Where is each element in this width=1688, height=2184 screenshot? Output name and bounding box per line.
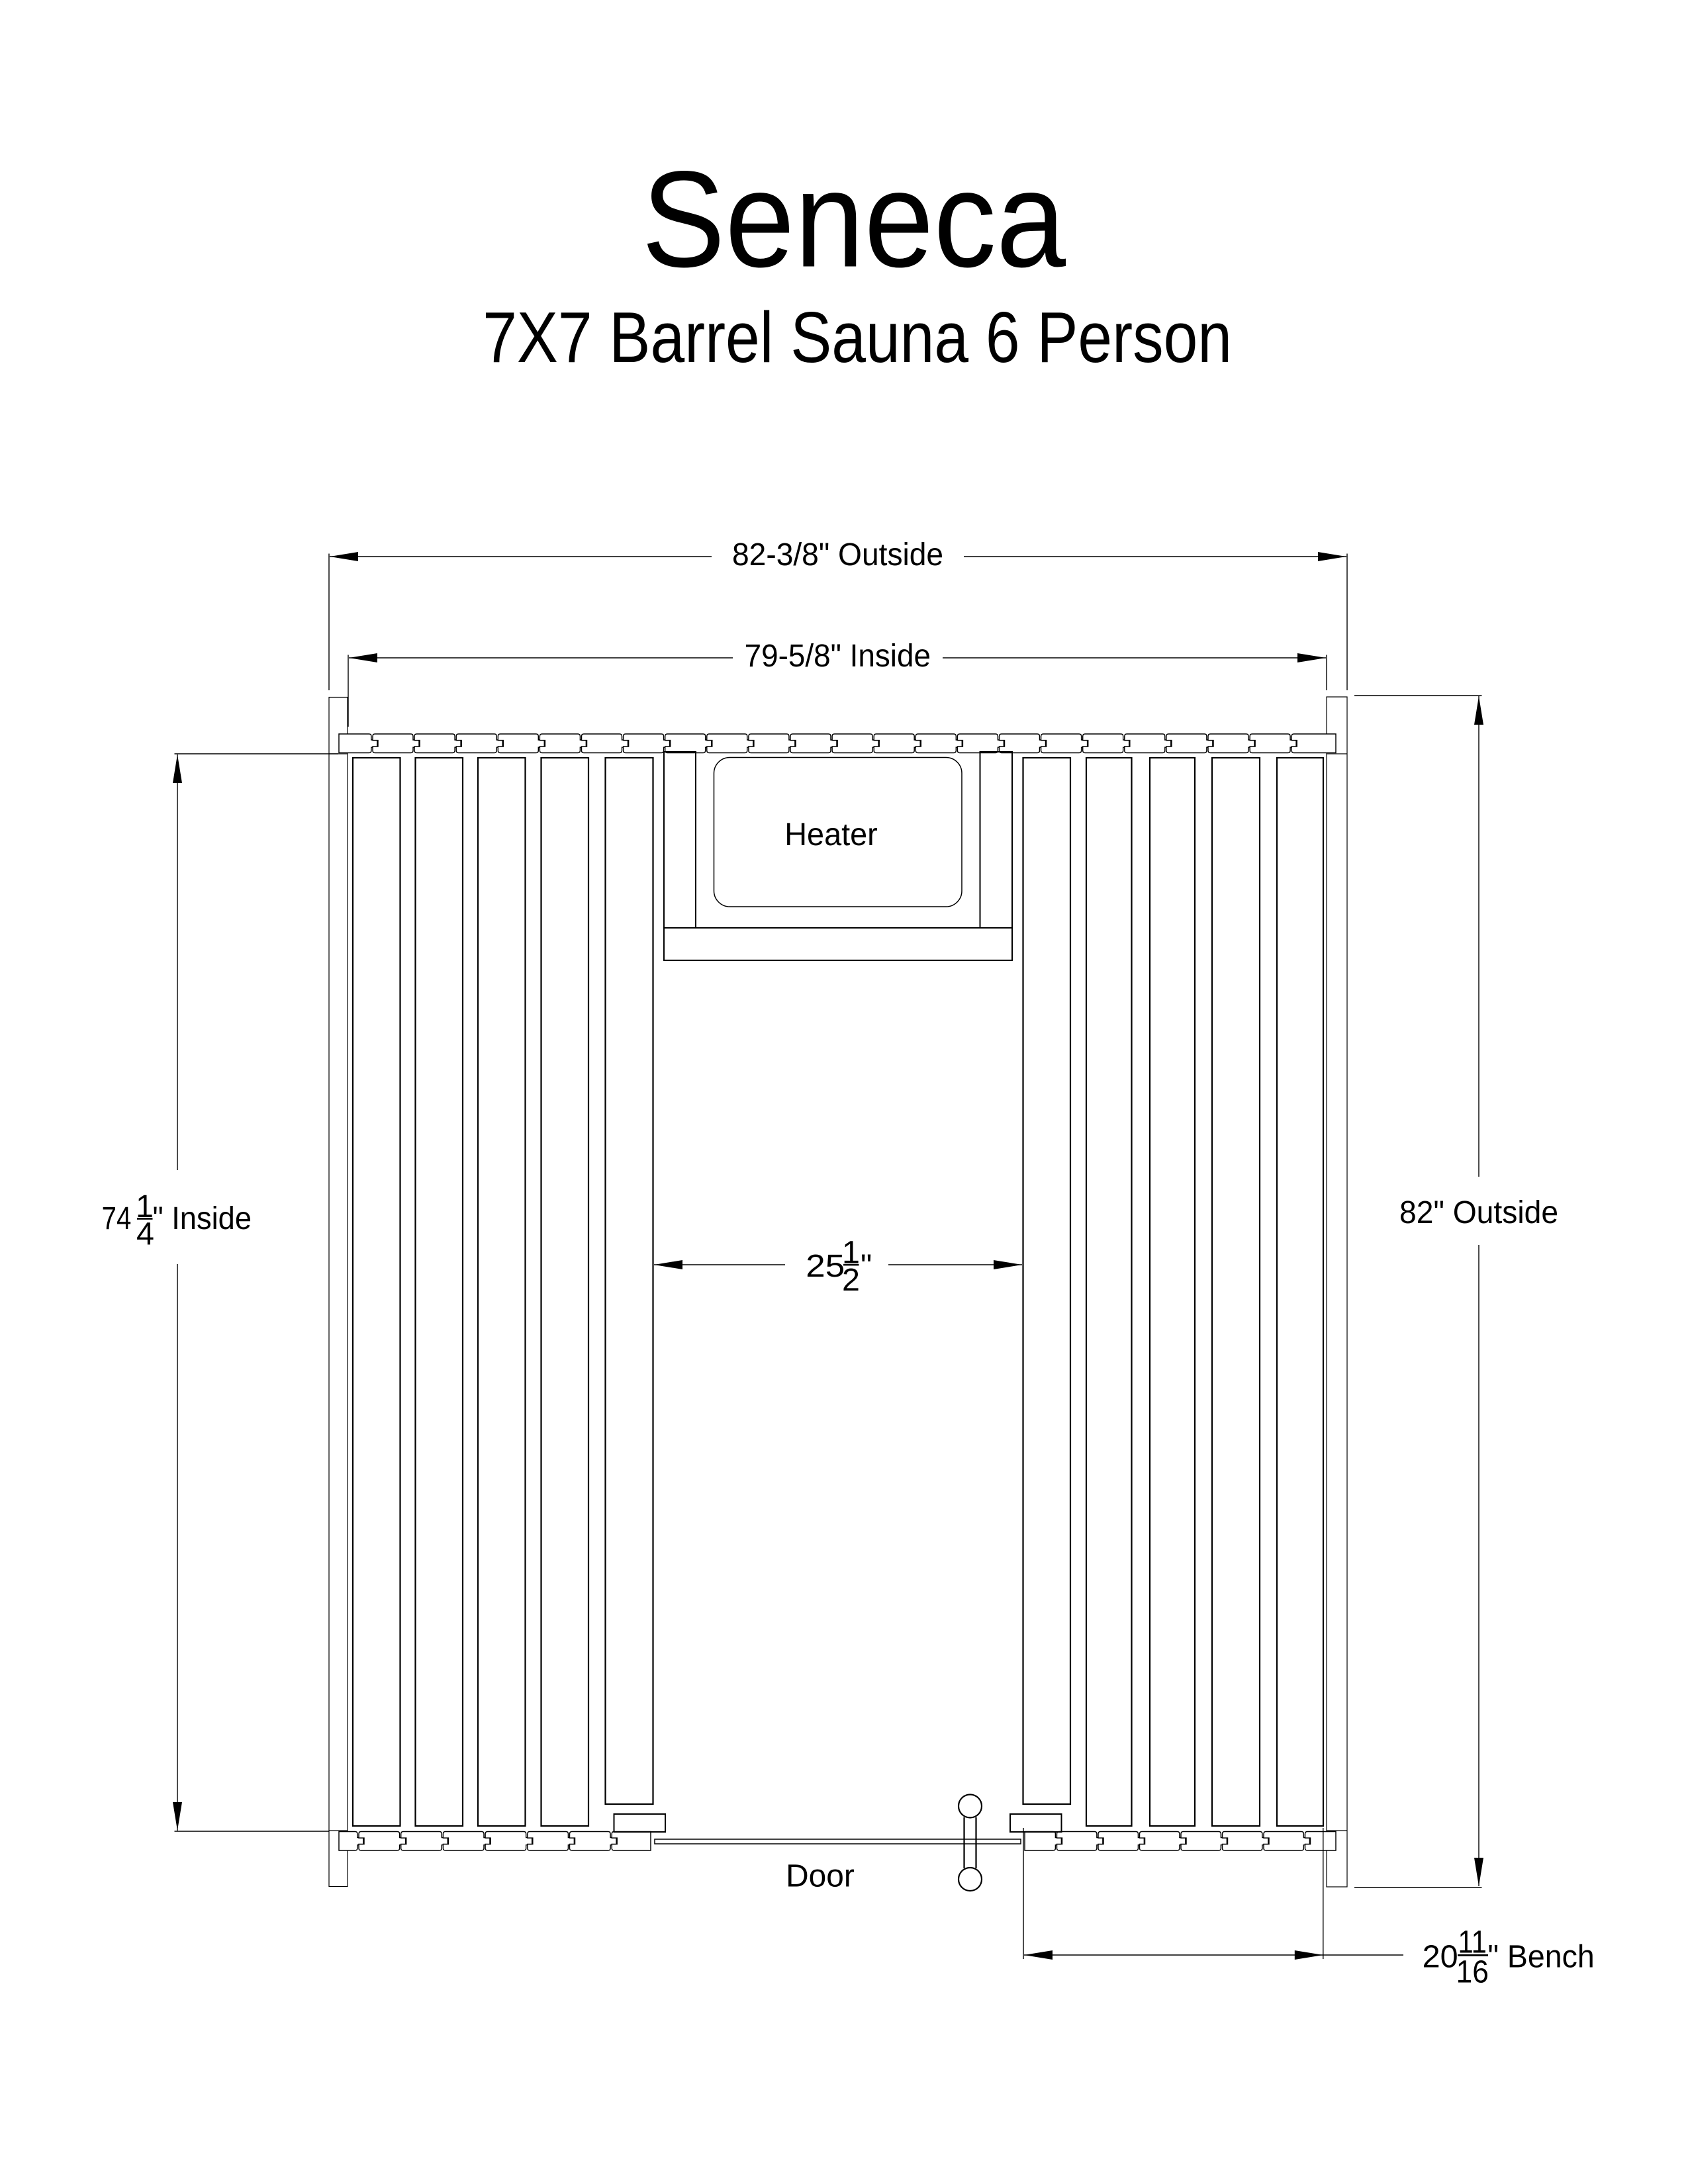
svg-text:79-5/8" Inside: 79-5/8" Inside [745, 638, 931, 674]
svg-text:2: 2 [842, 1262, 860, 1298]
svg-text:82" Outside: 82" Outside [1399, 1195, 1558, 1230]
svg-text:4: 4 [136, 1216, 154, 1252]
svg-text:Door: Door [786, 1858, 855, 1894]
svg-text:82-3/8" Outside: 82-3/8" Outside [732, 537, 943, 572]
svg-text:74: 74 [102, 1201, 132, 1236]
svg-text:" Inside: " Inside [153, 1201, 252, 1236]
svg-text:16: 16 [1456, 1954, 1489, 1989]
svg-text:Seneca: Seneca [641, 143, 1066, 296]
svg-text:" Bench: " Bench [1488, 1939, 1595, 1975]
svg-text:Heater: Heater [784, 817, 878, 852]
svg-text:25: 25 [806, 1248, 845, 1284]
svg-text:": " [861, 1248, 872, 1284]
svg-text:7X7 Barrel Sauna 6 Person: 7X7 Barrel Sauna 6 Person [483, 297, 1232, 377]
svg-text:20: 20 [1423, 1939, 1458, 1975]
